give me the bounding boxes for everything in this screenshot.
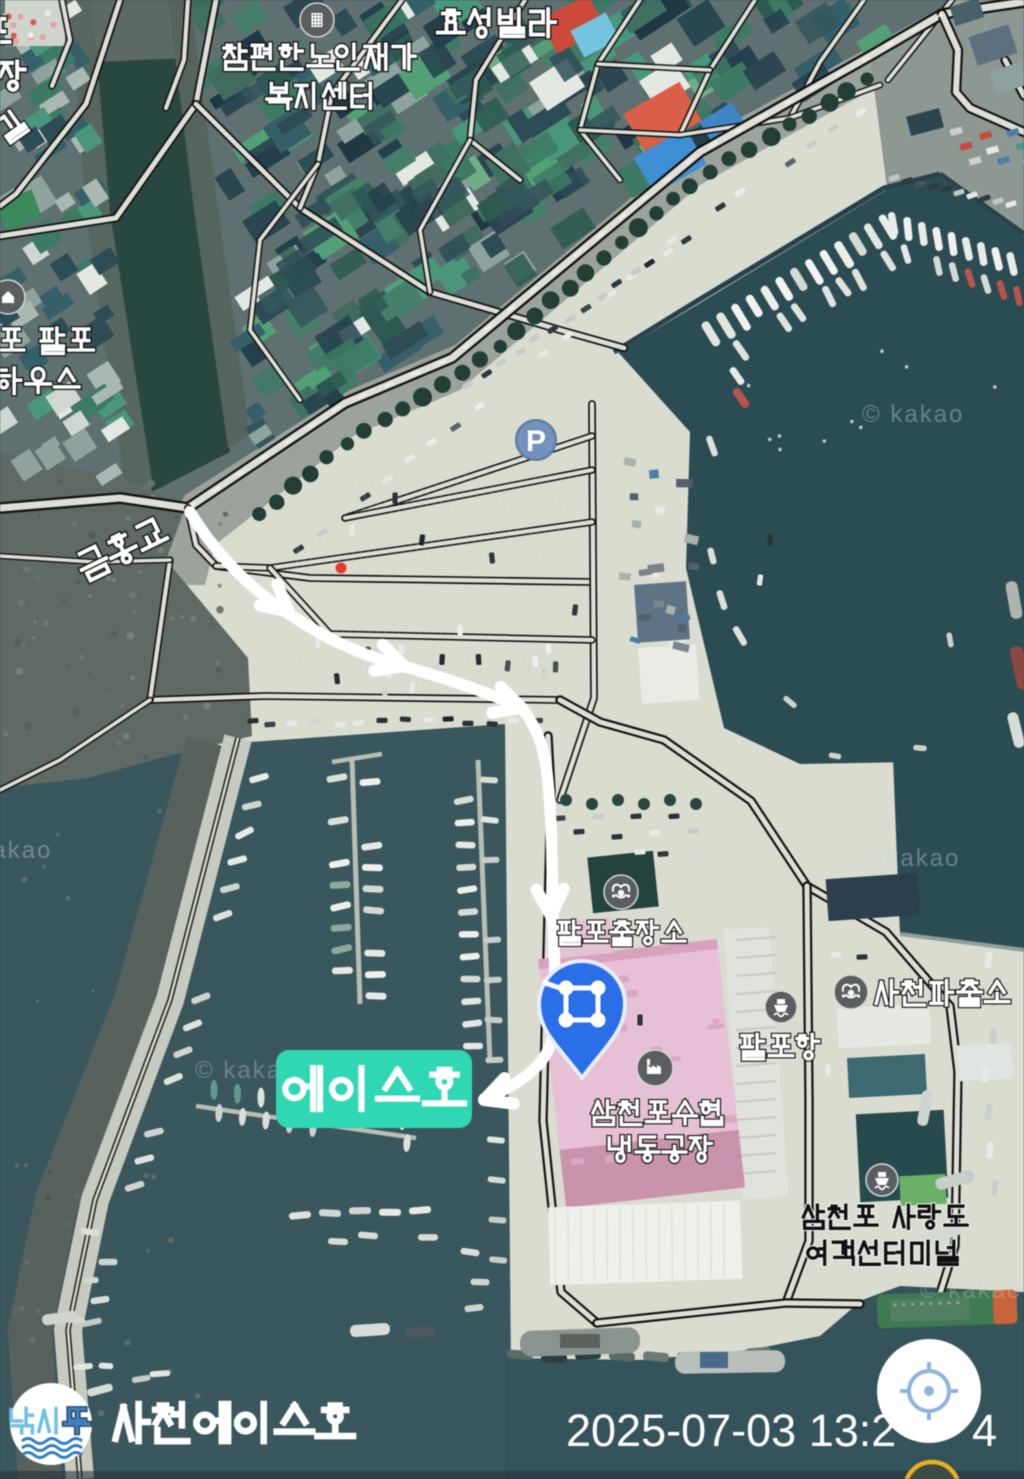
svg-text:2025-07-03 13:2: 2025-07-03 13:2 xyxy=(566,1405,896,1456)
svg-text:© kakao: © kakao xyxy=(858,845,960,872)
svg-text:© kakao: © kakao xyxy=(0,837,52,864)
svg-text:4: 4 xyxy=(972,1405,997,1456)
svg-text:P: P xyxy=(526,425,546,458)
svg-text:© kakao: © kakao xyxy=(920,1277,1022,1304)
svg-text:© kakao: © kakao xyxy=(862,401,964,428)
